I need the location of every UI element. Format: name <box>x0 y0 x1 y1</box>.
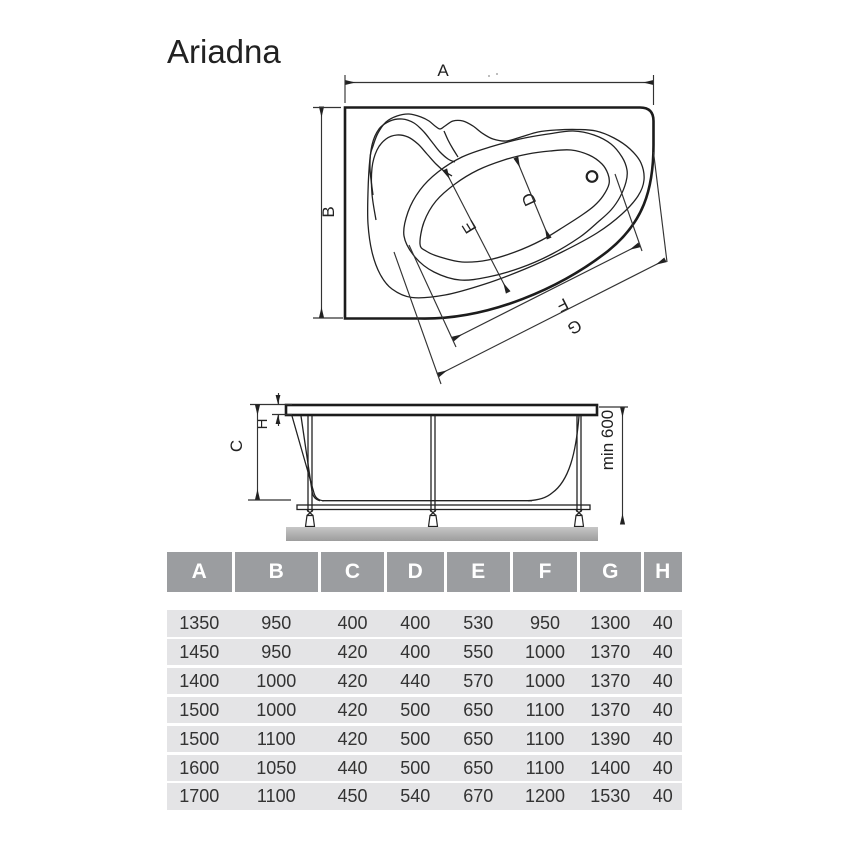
svg-text:C: C <box>227 440 246 452</box>
svg-text:B: B <box>319 206 338 217</box>
svg-text:D: D <box>518 190 540 209</box>
svg-text:E: E <box>458 217 480 237</box>
svg-text:H: H <box>254 419 271 430</box>
svg-text:A: A <box>437 61 449 80</box>
svg-text:min 600: min 600 <box>598 410 617 470</box>
svg-text:G: G <box>564 315 584 338</box>
